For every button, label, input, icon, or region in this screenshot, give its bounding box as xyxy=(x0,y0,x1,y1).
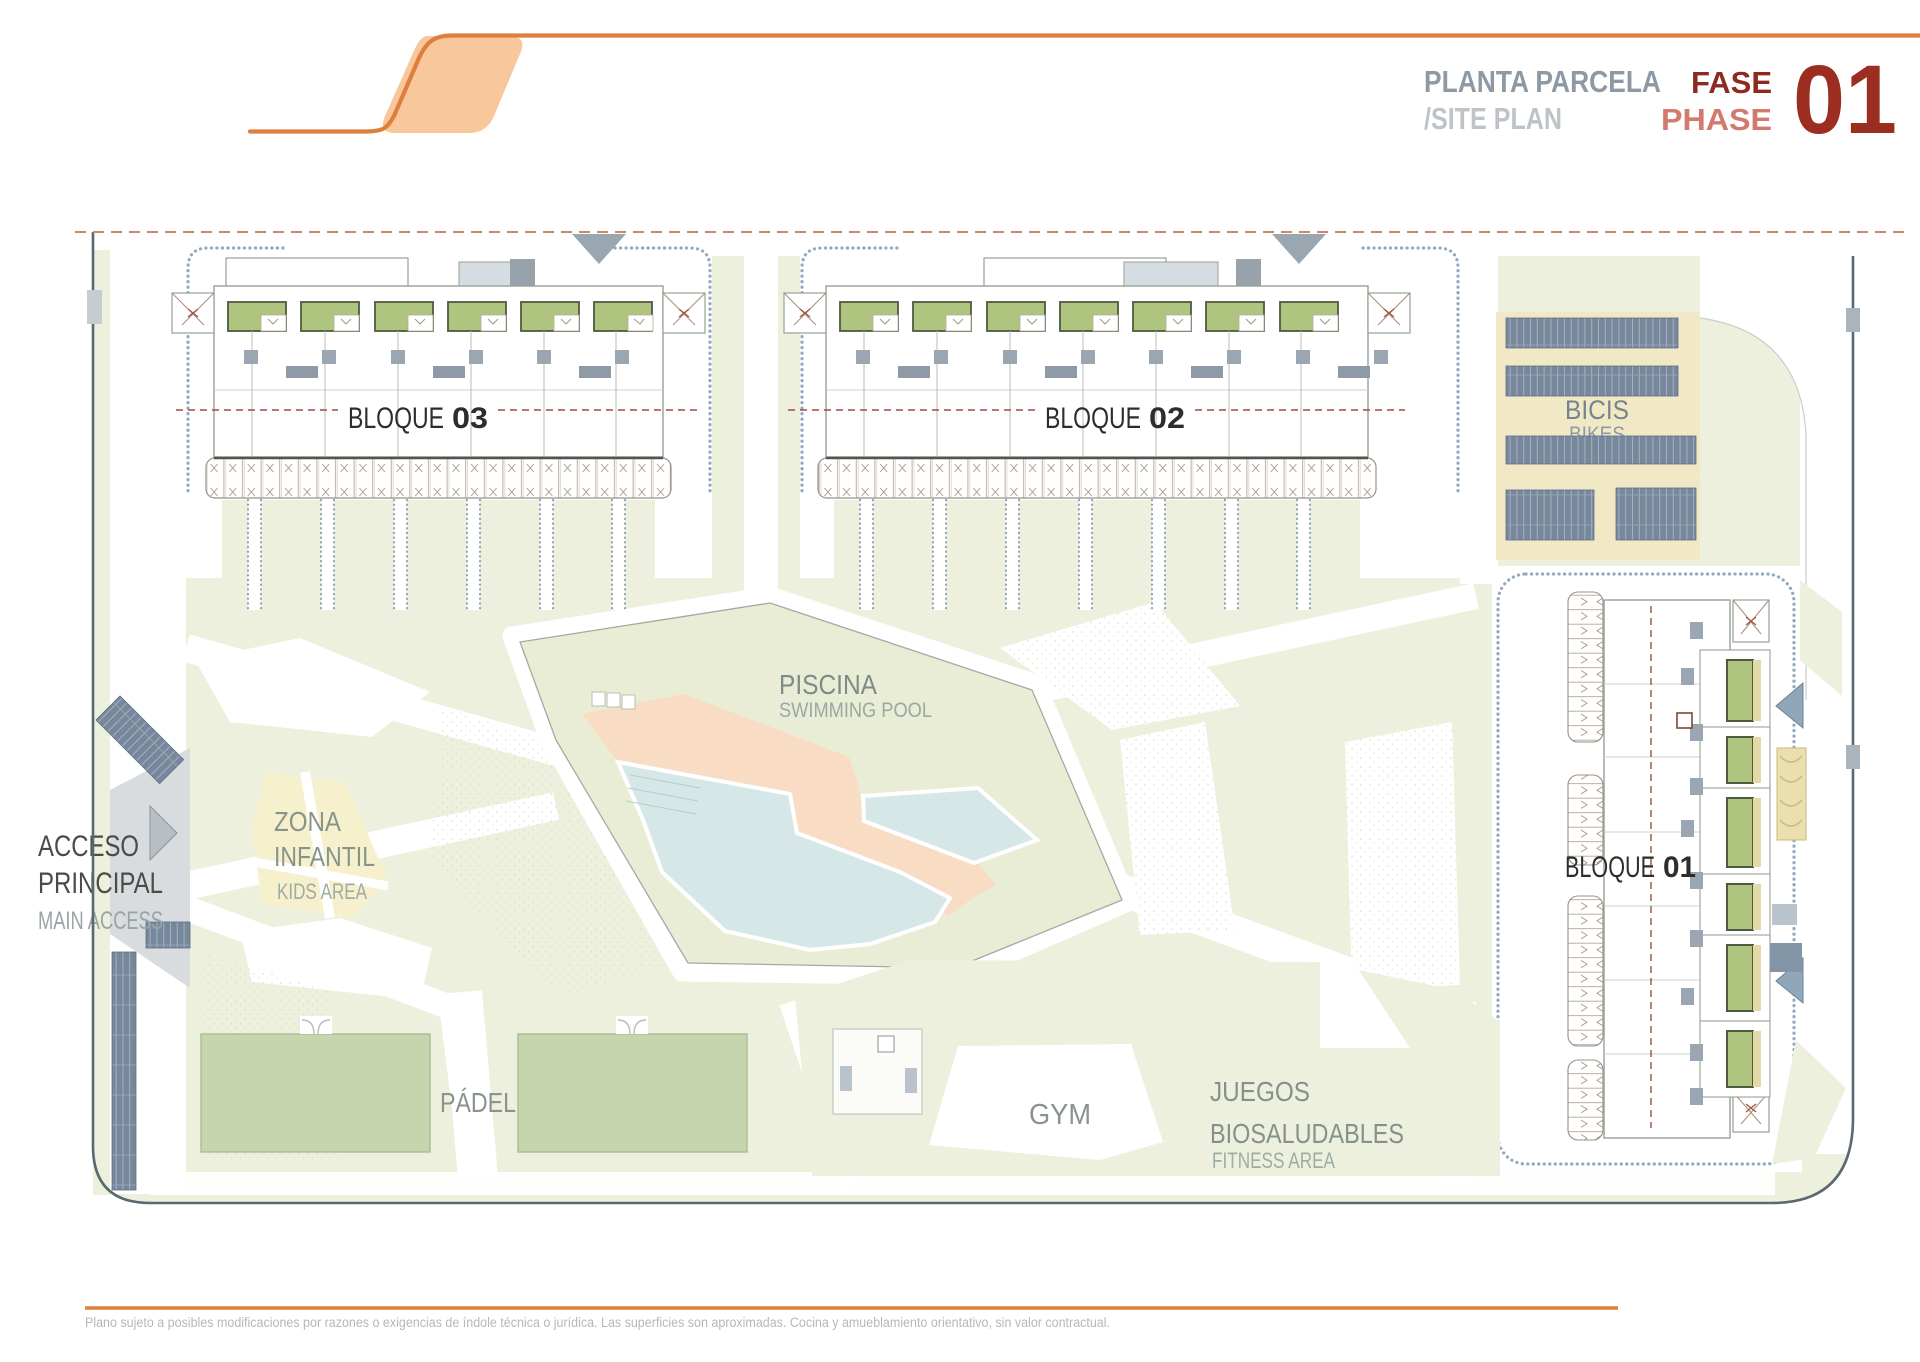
svg-text:FITNESS AREA: FITNESS AREA xyxy=(1212,1148,1335,1173)
svg-text:INFANTIL: INFANTIL xyxy=(274,841,375,872)
svg-text:SWIMMING POOL: SWIMMING POOL xyxy=(779,699,932,722)
svg-text:FASE: FASE xyxy=(1691,65,1772,100)
svg-text:BICIS: BICIS xyxy=(1565,395,1629,425)
svg-text:BLOQUE: BLOQUE xyxy=(1045,402,1141,435)
svg-text:01: 01 xyxy=(1793,45,1897,154)
svg-text:PHASE: PHASE xyxy=(1661,102,1772,137)
svg-text:PISCINA: PISCINA xyxy=(779,669,877,700)
svg-text:ACCESO: ACCESO xyxy=(38,830,139,863)
svg-text:/SITE PLAN: /SITE PLAN xyxy=(1424,101,1562,136)
svg-text:Plano sujeto a posibles modifi: Plano sujeto a posibles modificaciones p… xyxy=(85,1315,1110,1330)
svg-text:MAIN ACCESS: MAIN ACCESS xyxy=(38,907,163,935)
svg-text:BLOQUE: BLOQUE xyxy=(348,402,444,435)
svg-text:03: 03 xyxy=(452,402,488,435)
svg-text:JUEGOS: JUEGOS xyxy=(1210,1076,1310,1107)
svg-text:PÁDEL: PÁDEL xyxy=(440,1087,516,1118)
svg-text:02: 02 xyxy=(1149,402,1185,435)
svg-text:BLOQUE: BLOQUE xyxy=(1565,851,1655,884)
svg-text:GYM: GYM xyxy=(1029,1099,1091,1131)
svg-text:PLANTA PARCELA: PLANTA PARCELA xyxy=(1424,64,1661,99)
svg-text:KIDS AREA: KIDS AREA xyxy=(277,879,367,904)
svg-text:PRINCIPAL: PRINCIPAL xyxy=(38,867,163,900)
svg-text:ZONA: ZONA xyxy=(274,806,341,837)
svg-text:01: 01 xyxy=(1663,851,1696,884)
svg-text:BIOSALUDABLES: BIOSALUDABLES xyxy=(1210,1118,1404,1149)
